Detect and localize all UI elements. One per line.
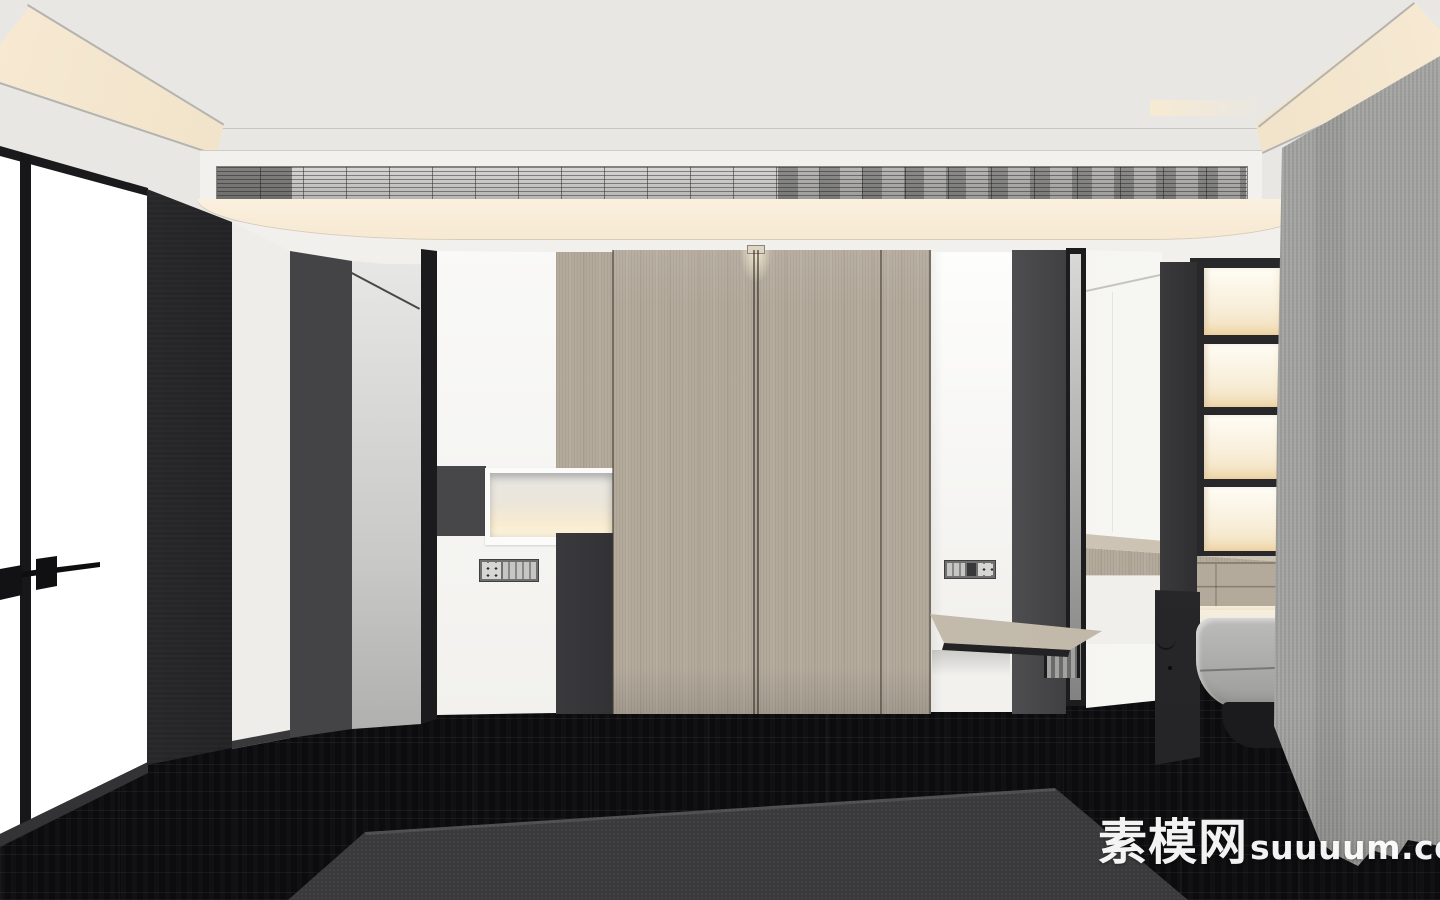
ceiling-recess-line	[222, 128, 1258, 129]
socket-outlet	[482, 562, 501, 579]
switch-bank	[947, 563, 965, 576]
power-socket-panel-right	[944, 560, 996, 579]
ceiling-spotlight	[747, 245, 765, 254]
shelf-compartment	[1204, 415, 1280, 479]
vent-shadow-right	[778, 167, 1246, 201]
spotlight-glow	[733, 250, 779, 330]
vent-shadow-left	[218, 167, 292, 201]
niche-side-panel	[437, 466, 486, 536]
watermark-latin: suuuum.com	[1250, 831, 1440, 864]
socket-outlet	[978, 563, 993, 576]
desk-shadow	[932, 650, 1010, 676]
cabinet-door-seam	[1112, 292, 1113, 532]
shelf-compartment	[1204, 268, 1280, 335]
wood-drawer-front	[1197, 562, 1286, 610]
plank-joint	[0, 772, 1440, 773]
shelf-compartment	[1204, 487, 1280, 551]
dark-panel-below-niche	[556, 533, 613, 714]
shelf-compartment	[1204, 344, 1280, 407]
door-seam	[612, 250, 614, 714]
power-socket-panel-left	[479, 559, 539, 582]
control-display	[967, 563, 975, 576]
curved-light-apron	[198, 199, 1320, 239]
cove-light-right-wall	[1150, 100, 1262, 116]
render-stage: 素模网suuuum.com	[0, 0, 1440, 900]
door-seam	[880, 250, 882, 714]
watermark-cn: 素模网	[1098, 818, 1248, 867]
cable-hole	[1168, 666, 1172, 670]
door-seam	[757, 250, 759, 714]
door-seam	[753, 250, 755, 714]
watermark: 素模网suuuum.com	[1098, 818, 1440, 867]
switch-bank	[503, 562, 536, 579]
wood-panel-strip	[556, 252, 613, 470]
